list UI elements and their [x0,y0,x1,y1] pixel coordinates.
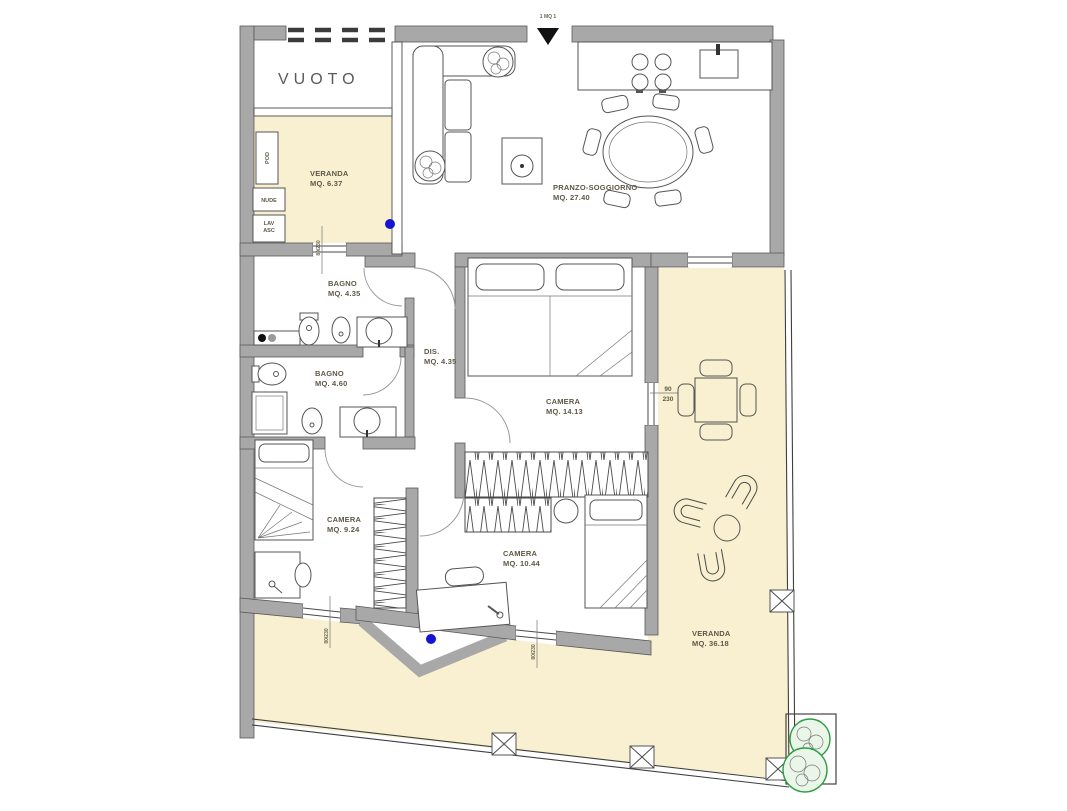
dim-balcony-height: 230 [663,396,674,403]
room-label-camera1-area: MQ. 14.13 [546,407,583,416]
washer-dot-icon [268,334,276,342]
appliance-label-asc: ASC [263,228,275,234]
entrance-arrow-icon [537,28,559,45]
single-bed [255,440,313,540]
plant-icon [483,47,513,77]
tv-cabinet [502,138,542,184]
wardrobe [465,498,551,532]
washer-dot-icon [258,334,266,342]
toilet-icon [252,363,286,385]
entrance-marker-label: 1 MQ 1 [540,14,557,20]
double-bed [468,258,632,376]
room-label-camera3-area: MQ. 10.44 [503,559,540,568]
floor-plan-page: 1 MQ 1 VUOTO VERANDA MQ. 6.37 PRANZO-SOG… [0,0,1067,811]
bush-icon [783,748,827,792]
room-label-veranda-small-name: VERANDA [310,169,349,178]
room-label-camera2-name: CAMERA [327,515,361,524]
room-label-bagno2-area: MQ. 4.60 [315,379,347,388]
kitchen [578,42,772,93]
plant-icon [415,151,445,181]
dim-balcony-width: 90 [664,386,672,393]
room-label-dis-name: DIS. [424,347,439,356]
room-label-bagno1-name: BAGNO [328,279,357,288]
room-label-camera2-area: MQ. 9.24 [327,525,360,534]
appliance-label-lav: LAV [264,221,275,227]
room-label-vuoto: VUOTO [278,71,360,88]
single-bed [585,495,647,608]
blue-marker-dot [385,219,395,229]
washbasin-icon [357,317,407,347]
washbasin-icon [340,407,396,437]
wardrobe [374,498,406,608]
room-label-camera3-name: CAMERA [503,549,537,558]
room-label-bagno1-area: MQ. 4.35 [328,289,360,298]
entrance-marker: 1 MQ 1 [537,14,559,45]
appliance-label-pod: POD [265,152,271,164]
room-label-veranda-large-area: MQ. 36.18 [692,639,729,648]
stool [554,499,578,523]
appliance-label-nude: NUDE [261,198,277,204]
room-label-veranda-large-name: VERANDA [692,629,731,638]
desk [255,552,311,598]
bagno1-fixtures [254,313,407,347]
wardrobe [465,452,648,497]
dim-label: 80/230 [316,240,322,256]
dim-label: 80/230 [531,644,537,660]
bidet-icon [302,408,322,434]
room-label-soggiorno-area: MQ. 27.40 [553,193,590,202]
room-label-soggiorno-name: PRANZO-SOGGIORNO [553,183,637,192]
desk [415,564,510,632]
room-label-camera1-name: CAMERA [546,397,580,406]
blue-marker-dot [426,634,436,644]
shower-tray-icon [252,392,287,434]
dim-label: 80/230 [324,628,330,644]
toilet-icon [299,313,319,345]
room-label-veranda-small-area: MQ. 6.37 [310,179,342,188]
bidet-icon [332,317,350,343]
room-label-bagno2-name: BAGNO [315,369,344,378]
veranda-floors [253,113,790,780]
floor-plan-svg: 1 MQ 1 VUOTO VERANDA MQ. 6.37 PRANZO-SOG… [0,0,1067,811]
room-label-dis-area: MQ. 4.35 [424,357,456,366]
planter [783,714,836,792]
